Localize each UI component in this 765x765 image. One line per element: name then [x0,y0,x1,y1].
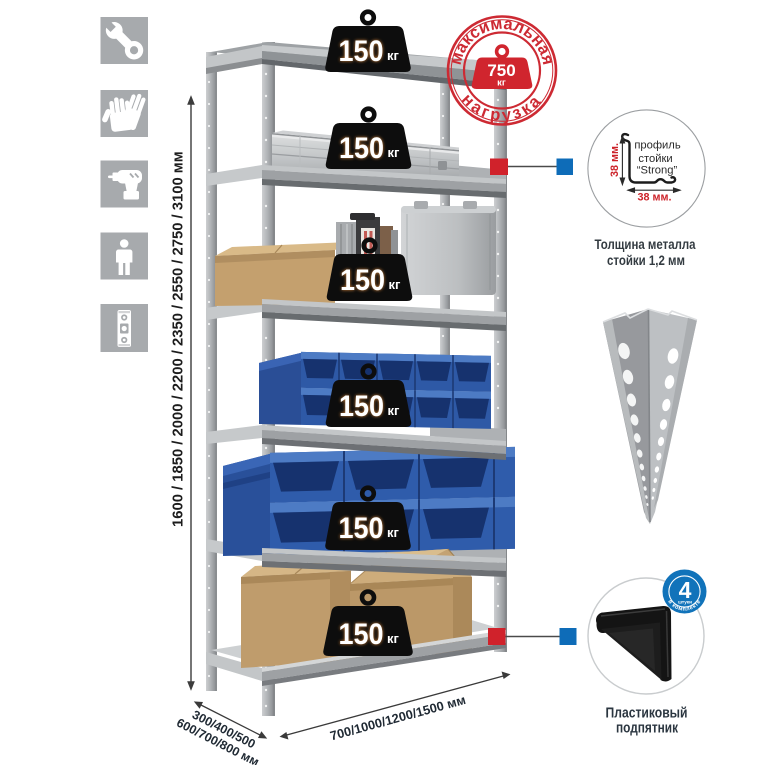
svg-text:штуки: штуки [678,600,692,605]
svg-text:кг: кг [388,145,401,160]
svg-text:кг: кг [388,403,401,418]
svg-text:кг: кг [387,525,400,540]
svg-text:кг: кг [387,48,400,63]
svg-text:профиль: профиль [634,140,680,152]
svg-text:150: 150 [340,264,385,297]
svg-text:кг: кг [389,277,402,292]
svg-text:150: 150 [339,512,384,545]
svg-text:Толщина металла: Толщина металла [595,237,696,253]
svg-text:150: 150 [339,390,384,423]
svg-text:кг: кг [387,631,400,646]
svg-text:Пластиковый: Пластиковый [606,706,688,722]
svg-text:150: 150 [339,618,384,651]
svg-text:стойки 1,2 мм: стойки 1,2 мм [607,253,685,269]
svg-text:“Strong”: “Strong” [637,165,678,177]
svg-text:150: 150 [339,132,384,165]
svg-text:38 мм.: 38 мм. [609,143,621,177]
svg-text:150: 150 [339,35,384,68]
svg-text:стойки: стойки [638,153,672,165]
svg-text:1600 / 1850 / 2000 / 2200 / 23: 1600 / 1850 / 2000 / 2200 / 2350 / 2550 … [171,151,187,527]
svg-text:кг: кг [497,78,506,89]
svg-text:подпятник: подпятник [616,721,678,737]
svg-text:38 мм.: 38 мм. [638,192,672,204]
